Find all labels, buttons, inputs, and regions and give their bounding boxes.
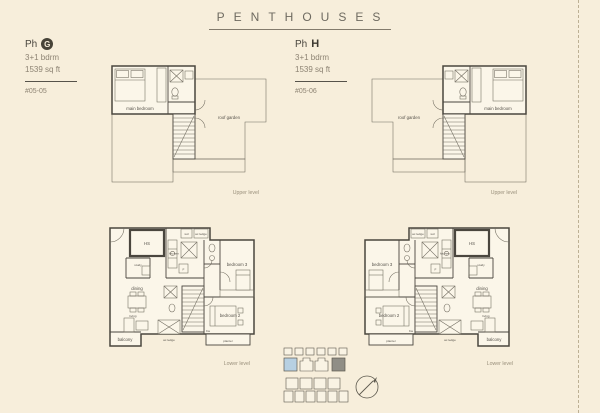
key-plan-top-row bbox=[284, 348, 347, 355]
dining-label: dining bbox=[131, 286, 143, 291]
bed-icon-bedroom3 bbox=[236, 270, 250, 290]
bed-icon bbox=[115, 69, 145, 101]
ac-ledge-bottom-label: ac ledge bbox=[163, 338, 175, 342]
deck-hatch bbox=[173, 159, 245, 172]
living-label: living bbox=[129, 314, 136, 318]
main-bedroom-label: main bedroom bbox=[484, 106, 512, 111]
wd-label: wd bbox=[431, 232, 435, 236]
wd-label: wd bbox=[185, 232, 189, 236]
roof-garden-label: roof garden bbox=[398, 115, 421, 120]
upper-level-label: Upper level bbox=[491, 190, 517, 196]
unit-g-badge: G bbox=[41, 38, 53, 50]
ac-ledge-top-label: ac ledge bbox=[195, 232, 207, 236]
hs-label: HS bbox=[144, 241, 150, 246]
unit-h-rule bbox=[295, 81, 347, 82]
terrace-stripes bbox=[465, 114, 526, 182]
lower-level-label: Lower level bbox=[224, 361, 250, 367]
ac-ledge-box bbox=[439, 320, 461, 334]
door-arc bbox=[195, 100, 205, 110]
bedroom3-label: bedroom 3 bbox=[372, 262, 393, 267]
north-arrow-icon bbox=[356, 376, 378, 398]
bed-icon-bedroom3 bbox=[369, 270, 383, 290]
stairs-icon bbox=[415, 286, 437, 332]
unit-g-bdrm: 3+1 bdrm bbox=[25, 53, 145, 62]
key-plan-unit bbox=[300, 358, 313, 371]
stairs-icon bbox=[173, 114, 195, 159]
unit-g-ph-label: Ph bbox=[25, 39, 37, 50]
study-label: study bbox=[134, 263, 142, 267]
unit-h-bdrm: 3+1 bdrm bbox=[295, 53, 415, 62]
unit-g-name: Ph G bbox=[25, 38, 145, 50]
ph-g-upper-plan: main bedroom roof garden Upper level bbox=[111, 62, 269, 198]
deck-hatch bbox=[393, 159, 465, 172]
fridge-label: F bbox=[183, 268, 185, 272]
door-arc bbox=[195, 118, 205, 128]
study-label: study bbox=[477, 263, 485, 267]
page-title-wrap: PENTHOUSES bbox=[0, 8, 600, 30]
kitchen-label: kitchen bbox=[169, 252, 179, 256]
ph-g-lower-plan: HS study dining living balcony kitchen w… bbox=[102, 220, 269, 370]
balcony-label: balcony bbox=[118, 337, 134, 342]
door-arc bbox=[433, 118, 443, 128]
unit-h-ph-label: Ph bbox=[295, 39, 307, 50]
unit-h-letter: H bbox=[311, 38, 319, 50]
planter-label: planter bbox=[386, 339, 395, 343]
fridge-label: F bbox=[435, 268, 437, 272]
upper-level-label: Upper level bbox=[233, 190, 259, 196]
page-edge-dashed-line bbox=[578, 0, 579, 413]
stairs-icon bbox=[182, 286, 204, 332]
key-plan-bottom-block bbox=[284, 378, 348, 402]
bedroom2-label: bedroom 2 bbox=[220, 313, 241, 318]
roof-garden-label: roof garden bbox=[218, 115, 241, 120]
bedroom3-label: bedroom 3 bbox=[227, 262, 248, 267]
key-plan-unit-g-highlight bbox=[284, 358, 297, 371]
terrace-stripes bbox=[112, 114, 173, 182]
ac-ledge-bottom-label: ac ledge bbox=[444, 338, 456, 342]
stairs-icon bbox=[443, 114, 465, 159]
planter-label: planter bbox=[223, 339, 232, 343]
key-plan-unit-h-highlight bbox=[332, 358, 345, 371]
lower-level-label: Lower level bbox=[487, 361, 513, 367]
ac-ledge-box bbox=[158, 320, 180, 334]
dining-label: dining bbox=[476, 286, 488, 291]
bed-icon bbox=[493, 69, 523, 101]
page-title: PENTHOUSES bbox=[209, 10, 392, 30]
hs-label: HS bbox=[469, 241, 475, 246]
key-plan-unit bbox=[315, 358, 328, 371]
door-arc bbox=[433, 100, 443, 110]
unit-g-rule bbox=[25, 81, 77, 82]
ph-h-upper-plan: main bedroom roof garden Upper level bbox=[369, 62, 527, 198]
unit-h-name: Ph H bbox=[295, 38, 415, 50]
ac-ledge-top-label: ac ledge bbox=[412, 232, 424, 236]
key-plan bbox=[282, 346, 382, 404]
kitchen-label: kitchen bbox=[440, 252, 450, 256]
main-bedroom-label: main bedroom bbox=[126, 106, 154, 111]
bedroom2-label: bedroom 2 bbox=[379, 313, 400, 318]
living-label: living bbox=[482, 314, 489, 318]
balcony-label: balcony bbox=[487, 337, 503, 342]
brochure-page: PENTHOUSES Ph G 3+1 bdrm 1539 sq ft #05-… bbox=[0, 0, 600, 413]
